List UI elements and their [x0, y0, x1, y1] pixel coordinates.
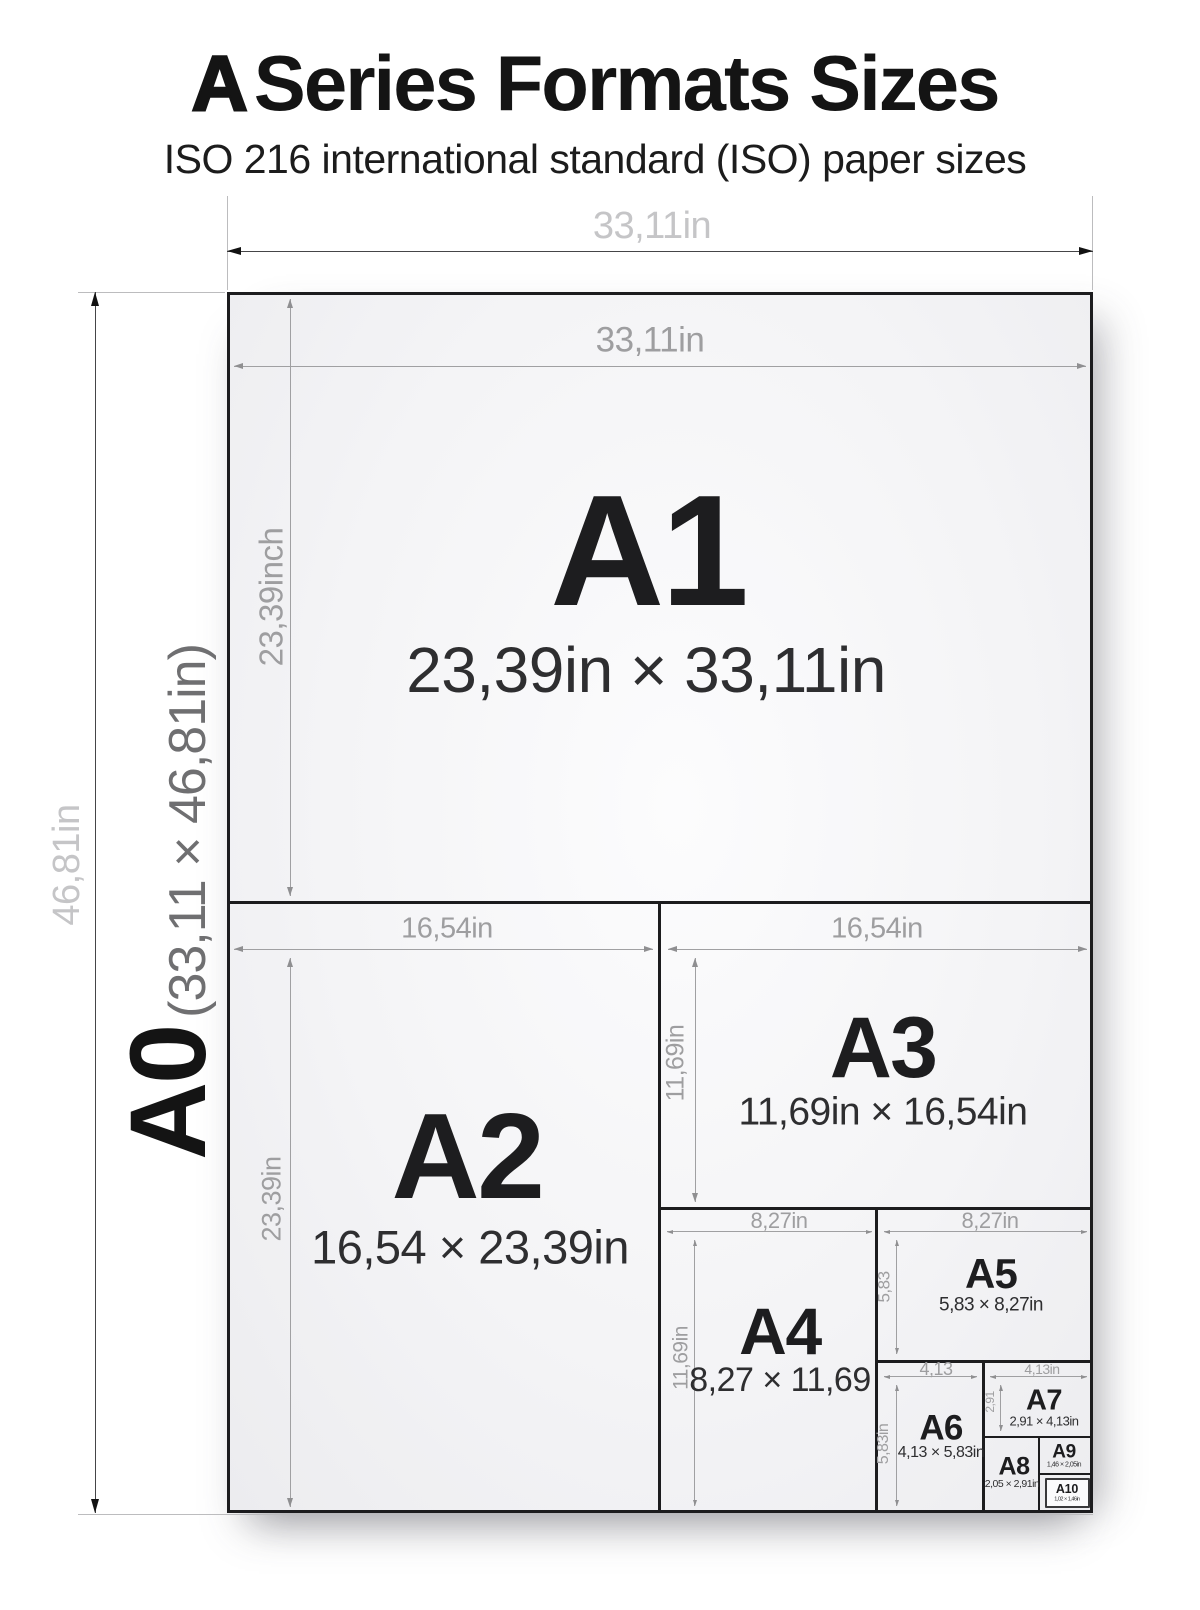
a8-label: A8 [999, 1455, 1030, 1480]
a1-width-dim-label: 33,11in [596, 323, 705, 358]
a2-height-dim-label: 23,39in [259, 1156, 286, 1241]
a5-width-dim-label: 8,27in [962, 1210, 1019, 1232]
a10-dims: 1,02 × 1,46in [1054, 1497, 1079, 1503]
page-subtitle: ISO 216 international standard (ISO) pap… [0, 136, 1190, 183]
a0-width-dim-label: 33,11in [593, 207, 711, 245]
a0-label: A0 [114, 1026, 222, 1160]
a5-height-dim-label: 5,83 [876, 1271, 893, 1302]
a5-label: A5 [965, 1253, 1017, 1295]
a7-label: A7 [1026, 1387, 1062, 1416]
a7-height-arrow [1000, 1385, 1001, 1431]
a0-dims: (33,11 × 46,81in) [162, 644, 214, 1018]
a2-label: A2 [391, 1095, 542, 1217]
ext-tick-left-top [78, 292, 225, 293]
a1-dims: 23,39in × 33,11in [406, 638, 886, 702]
a9-label: A9 [1052, 1443, 1076, 1462]
a5-height-arrow [896, 1240, 897, 1354]
a1-width-arrow [234, 366, 1086, 367]
a0-height-arrow [95, 292, 96, 1513]
a9-dims: 1,46 × 2,05in [1047, 1462, 1081, 1469]
a7-height-dim-label: 2,91 [984, 1391, 996, 1412]
a3-label: A3 [830, 1005, 937, 1091]
a0-height-dim-label: 46,81in [48, 804, 86, 925]
title-bold-letter: A [191, 39, 247, 127]
divider-a8-right [1038, 1437, 1040, 1513]
page-title: ASeries Formats Sizes [0, 44, 1190, 122]
a6-label: A6 [919, 1411, 962, 1446]
a0-caption: A0 (33,11 × 46,81in) [114, 644, 222, 1160]
a3-height-dim-label: 11,69in [664, 1025, 689, 1102]
title-text: Series Formats Sizes [254, 39, 999, 127]
a7-dims: 2,91 × 4,13in [1009, 1415, 1078, 1428]
a3-height-arrow [695, 958, 696, 1202]
a2-height-arrow [290, 958, 291, 1507]
a1-height-arrow [290, 299, 291, 896]
a1-height-dim-label: 23,39inch [255, 528, 288, 667]
ext-tick-top-left [227, 196, 228, 290]
a1-label: A1 [550, 472, 746, 630]
a3-width-dim-label: 16,54in [831, 915, 923, 944]
a4-label: A4 [739, 1298, 821, 1364]
divider-a9-bottom [1039, 1473, 1093, 1475]
ext-tick-top-right [1092, 196, 1093, 290]
ext-tick-bottom [78, 1514, 1093, 1515]
a2-width-arrow [234, 949, 653, 950]
a4-width-dim-label: 8,27in [751, 1210, 808, 1232]
a3-dims: 11,69in × 16,54in [739, 1093, 1028, 1132]
a2-dims: 16,54 × 23,39in [311, 1224, 629, 1271]
a2-width-dim-label: 16,54in [401, 915, 493, 944]
a6-height-dim-label: 5,83in [876, 1424, 892, 1465]
a6-width-dim-label: 4,13 [919, 1360, 952, 1378]
a8-dims: 2,05 × 2,91in [985, 1479, 1040, 1490]
a5-dims: 5,83 × 8,27in [939, 1296, 1043, 1315]
a0-width-arrow [227, 251, 1093, 252]
a10-label: A10 [1056, 1483, 1078, 1496]
a3-width-arrow [668, 949, 1087, 950]
a6-dims: 4,13 × 5,83in [898, 1445, 984, 1461]
a4-dims: 8,27 × 11,69 [689, 1363, 870, 1397]
a7-width-dim-label: 4,13in [1024, 1362, 1059, 1376]
